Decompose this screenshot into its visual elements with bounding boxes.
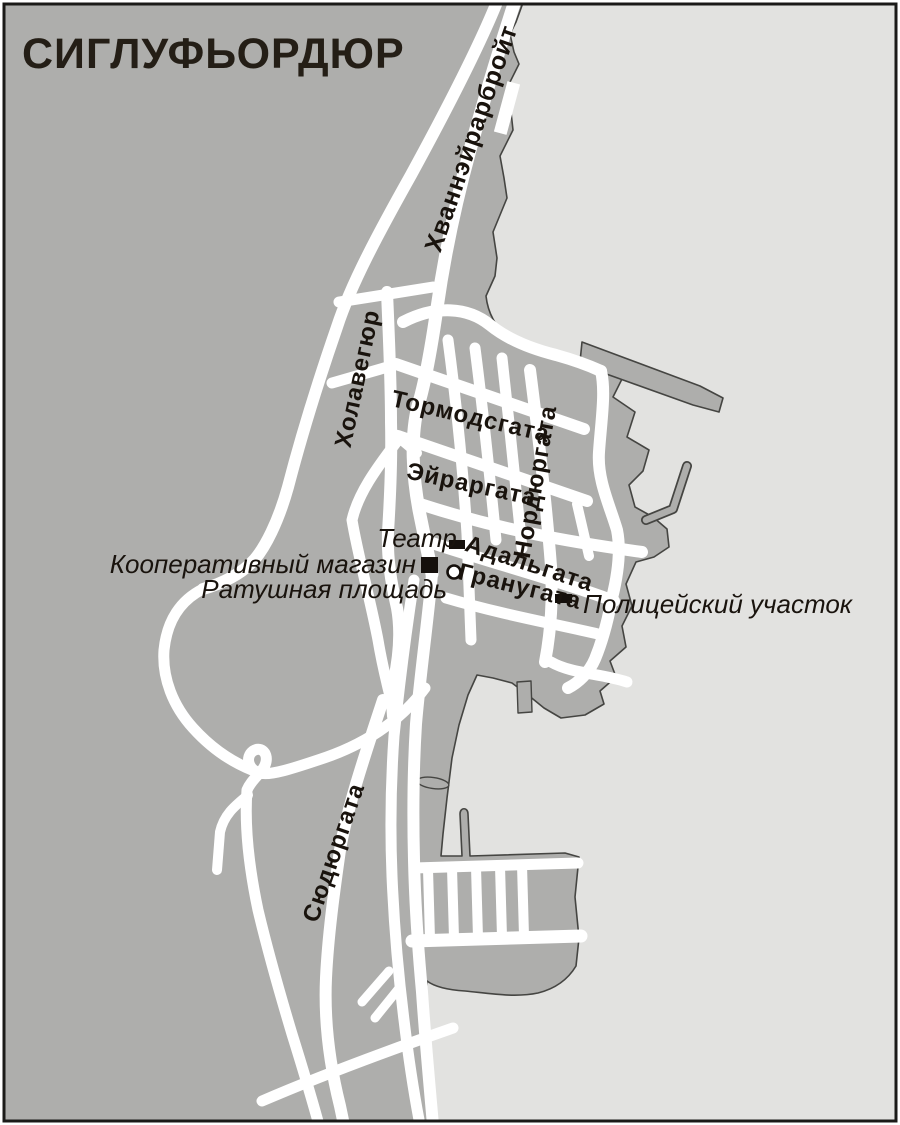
shore-stub xyxy=(517,681,532,713)
dock-berth-3 xyxy=(476,867,478,938)
police-station-label: Полицейский участок xyxy=(583,589,854,619)
dock-berth-2 xyxy=(452,868,454,938)
town-hall-square-label: Ратушная площадь xyxy=(201,574,447,604)
coop-store-marker xyxy=(421,557,438,573)
map-page: Хваннэйрарбройт Холавегюр Тормодсгата Эй… xyxy=(0,0,900,1125)
dock-berth-5 xyxy=(522,865,524,936)
dock-road-bottom xyxy=(412,936,581,941)
town-map-canvas: Хваннэйрарбройт Холавегюр Тормодсгата Эй… xyxy=(0,0,900,1125)
map-title: СИГЛУФЬОРДЮР xyxy=(22,30,405,78)
dock-berth-1 xyxy=(428,869,430,939)
dock-berth-4 xyxy=(500,866,502,937)
